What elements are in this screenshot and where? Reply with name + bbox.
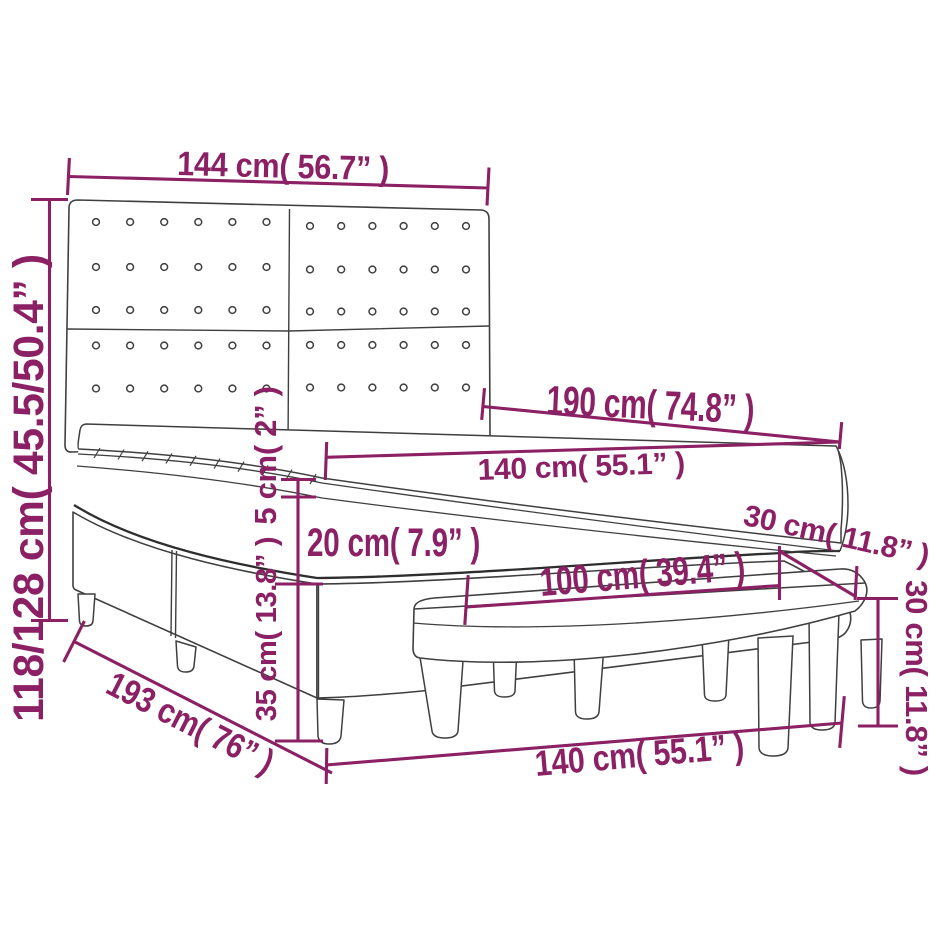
svg-text:35 cm( 13.8” ): 35 cm( 13.8” ) [251,537,283,721]
svg-text:118/128 cm( 45.5/50.4” ): 118/128 cm( 45.5/50.4” ) [6,254,53,722]
svg-text:5 cm( 2” ): 5 cm( 2” ) [248,386,283,524]
svg-text:20 cm( 7.9” ): 20 cm( 7.9” ) [307,521,480,565]
svg-text:30 cm( 11.8” ): 30 cm( 11.8” ) [899,580,934,776]
svg-text:190 cm( 74.8” ): 190 cm( 74.8” ) [546,377,756,432]
svg-text:144 cm( 56.7” ): 144 cm( 56.7” ) [177,145,390,188]
